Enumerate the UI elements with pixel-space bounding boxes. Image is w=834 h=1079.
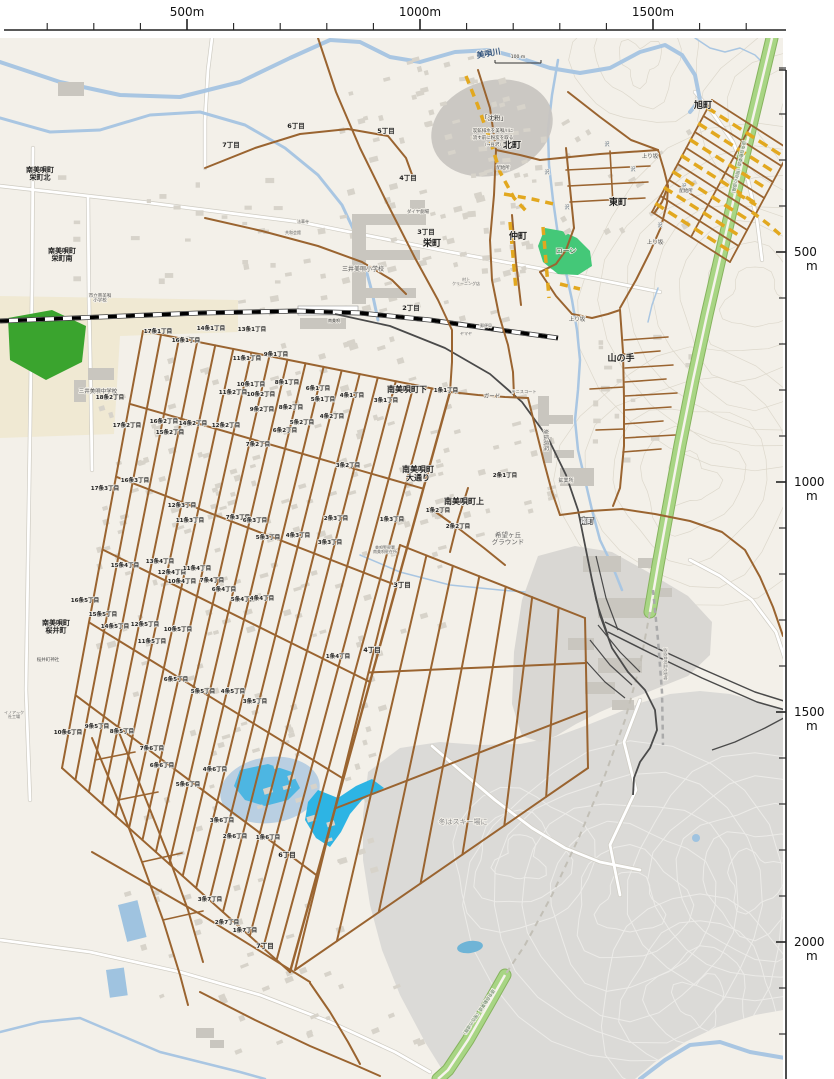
map-label: 旭町 bbox=[693, 99, 712, 111]
map-label: 14条1丁目 bbox=[197, 324, 225, 332]
map-label: 16条1丁目 bbox=[172, 336, 200, 344]
map-label: 上り坂 bbox=[647, 238, 664, 246]
map-label: 100 m bbox=[511, 54, 525, 60]
svg-text:m: m bbox=[806, 949, 818, 963]
map-label: 沢 bbox=[657, 222, 662, 229]
map-label: 南町 bbox=[581, 516, 595, 525]
map-label: 流す前に粉炭を取る bbox=[473, 134, 514, 141]
map-label: 7丁目 bbox=[256, 942, 274, 950]
svg-text:m: m bbox=[806, 489, 818, 503]
map-label: 1条2丁目 bbox=[426, 506, 451, 514]
map-label: 11条5丁目 bbox=[138, 637, 166, 645]
building bbox=[366, 288, 416, 298]
map-label: 14条5丁目 bbox=[101, 622, 129, 630]
map-label: 12条3丁目 bbox=[168, 501, 196, 509]
map-label: 炭鉱病院 bbox=[542, 429, 550, 452]
ruler-label: 500 bbox=[794, 245, 817, 259]
map-label: 1条7丁目 bbox=[233, 926, 258, 934]
map-label: 13条1丁目 bbox=[238, 325, 266, 333]
map-label: 11条3丁目 bbox=[176, 516, 204, 524]
map-label: 沢 bbox=[604, 141, 609, 148]
svg-text:m: m bbox=[806, 719, 818, 733]
map-label: 4丁目 bbox=[363, 646, 381, 654]
map-label: 4条2丁目 bbox=[320, 412, 345, 420]
map-label: 4条1丁目 bbox=[340, 391, 365, 399]
map-label: 1条4丁目 bbox=[326, 652, 351, 660]
map-svg[interactable]: 17条1丁目16条1丁目14条1丁目13条1丁目11条1丁目10条1丁目9条1丁… bbox=[0, 0, 834, 1079]
map-label: 共和会館 bbox=[285, 229, 301, 235]
map-label: 10条2丁目 bbox=[247, 390, 275, 398]
map-label: 6条3丁目 bbox=[243, 516, 268, 524]
map-label: 17条2丁目 bbox=[113, 421, 141, 429]
map-label: 5条2丁目 bbox=[290, 418, 315, 426]
map-label: 3丁目 bbox=[417, 228, 435, 236]
map-label: 南美唄町桜井町 bbox=[42, 618, 70, 634]
map-label: 炭鉱排水を美唄川に bbox=[473, 127, 514, 134]
map-label: 法華寺 bbox=[297, 218, 309, 224]
map-label: 2丁目 bbox=[402, 304, 420, 312]
map-label: 2条7丁目 bbox=[215, 918, 240, 926]
map-label: 10条5丁目 bbox=[164, 625, 192, 633]
map-label: 15条2丁目 bbox=[156, 428, 184, 436]
map-label: 南美唄町上 bbox=[444, 496, 484, 506]
map-label: 16条3丁目 bbox=[121, 476, 149, 484]
map-page: 17条1丁目16条1丁目14条1丁目13条1丁目11条1丁目10条1丁目9条1丁… bbox=[0, 0, 834, 1079]
building bbox=[585, 682, 615, 694]
map-label: 8条5丁目 bbox=[110, 727, 135, 735]
svg-text:m: m bbox=[806, 259, 818, 273]
map-label: 「沈粉」 bbox=[481, 113, 507, 122]
map-label: 配給所 bbox=[496, 164, 510, 171]
map-label: 10条4丁目 bbox=[168, 577, 196, 585]
map-label: ヤマヤ bbox=[460, 331, 472, 336]
map-label: 9条2丁目 bbox=[250, 405, 275, 413]
building bbox=[210, 1040, 224, 1048]
map-label: 7条2丁目 bbox=[246, 440, 271, 448]
map-label: 5条1丁目 bbox=[311, 395, 336, 403]
map-label: 16条2丁目 bbox=[150, 417, 178, 425]
building bbox=[538, 396, 549, 426]
map-label: 11条2丁目 bbox=[219, 388, 247, 396]
map-label: 12条5丁目 bbox=[131, 620, 159, 628]
building bbox=[549, 415, 573, 424]
map-label: 6条6丁目 bbox=[150, 761, 175, 769]
map-label: 11条1丁目 bbox=[233, 354, 261, 362]
map-label: ガード bbox=[484, 392, 501, 400]
map-label: 14条2丁目 bbox=[179, 419, 207, 427]
map-label: 17条1丁目 bbox=[144, 327, 172, 335]
map-label: 沢 bbox=[564, 204, 569, 211]
map-label: 3丁目 bbox=[393, 581, 411, 589]
map-label: 沢 bbox=[630, 166, 635, 173]
building bbox=[196, 1028, 214, 1038]
map-label: 2条6丁目 bbox=[223, 832, 248, 840]
map-label: 配給所 bbox=[679, 187, 693, 194]
map-label: 10条6丁目 bbox=[54, 728, 82, 736]
map-label: 沢 bbox=[544, 169, 549, 176]
map-label: 山の手 bbox=[607, 352, 634, 364]
building bbox=[598, 598, 646, 618]
map-label: 5条3丁目 bbox=[256, 533, 281, 541]
building bbox=[568, 638, 594, 650]
map-label: 4条6丁目 bbox=[203, 765, 228, 773]
map-label: 2条2丁目 bbox=[446, 522, 471, 530]
map-label: 9条1丁目 bbox=[264, 350, 289, 358]
map-label: 3条7丁目 bbox=[198, 895, 223, 903]
map-label: 4丁目 bbox=[399, 174, 417, 182]
map-label: 6条4丁目 bbox=[212, 585, 237, 593]
map-label: 仲町 bbox=[509, 230, 527, 242]
ruler-label: 1500 bbox=[794, 705, 825, 719]
map-label: 上り坂 bbox=[642, 152, 659, 160]
ruler-label: 1000 bbox=[794, 475, 825, 489]
map-label: 栄町 bbox=[422, 237, 441, 249]
map-label: 6丁目 bbox=[278, 851, 296, 859]
map-label: （→豆沢） bbox=[482, 141, 504, 148]
map-label: 鉱業所 bbox=[558, 477, 573, 484]
ruler-label: 500m bbox=[170, 5, 205, 19]
map-label: 1条6丁目 bbox=[256, 833, 281, 841]
map-label: 5丁目 bbox=[377, 127, 395, 135]
map-label: ローン bbox=[556, 247, 577, 255]
map-label: 7丁目 bbox=[222, 141, 240, 149]
ruler-label: 1000m bbox=[399, 5, 441, 19]
building bbox=[410, 200, 425, 209]
map-label: 2条1丁目 bbox=[493, 471, 518, 479]
map-label: 南美唄町下 bbox=[387, 384, 427, 394]
map-label: 10条1丁目 bbox=[237, 380, 265, 388]
map-label: 5条5丁目 bbox=[191, 687, 216, 695]
map-label: ダイヤ劇場 bbox=[407, 208, 430, 215]
building bbox=[88, 368, 114, 380]
map-label: 上り坂 bbox=[569, 315, 586, 323]
map-label: 南美唄町大通り bbox=[402, 464, 434, 482]
map-label: 冬はスキー場に bbox=[439, 817, 488, 826]
ruler-label: 1500m bbox=[632, 5, 674, 19]
map-label: 12条2丁目 bbox=[212, 421, 240, 429]
ruler-label: 2000 bbox=[794, 935, 825, 949]
map-label: 郵便局 bbox=[480, 322, 492, 328]
map-label: 13条4丁目 bbox=[146, 557, 174, 565]
map-label: 6条1丁目 bbox=[306, 384, 331, 392]
map-label: 1条1丁目 bbox=[434, 386, 459, 394]
map-label: 4条3丁目 bbox=[286, 531, 311, 539]
map-label: 東町 bbox=[609, 196, 627, 208]
map-label: 8条2丁目 bbox=[279, 403, 304, 411]
map-label: 4条4丁目 bbox=[250, 594, 275, 602]
map-label: 希望ヶ丘グラウンド bbox=[492, 530, 525, 546]
map-label: 3条2丁目 bbox=[336, 461, 361, 469]
map-label: 三井美唄中学校 bbox=[79, 387, 118, 395]
map-label: 道道美唄富良野線 bbox=[663, 648, 669, 680]
map-label: 6丁目 bbox=[287, 122, 305, 130]
map-label: 桜井町神社 bbox=[37, 656, 60, 663]
map-label: 南美唄 bbox=[328, 317, 340, 323]
map-label: 5条6丁目 bbox=[176, 780, 201, 788]
map-label: 3条3丁目 bbox=[318, 538, 343, 546]
historic-street bbox=[596, 429, 624, 430]
map-label: 1条3丁目 bbox=[380, 515, 405, 523]
map-label: 11条4丁目 bbox=[183, 564, 211, 572]
map-label: 3条5丁目 bbox=[243, 697, 268, 705]
map-label: 7条6丁目 bbox=[140, 744, 165, 752]
map-label: 9条5丁目 bbox=[85, 722, 110, 730]
map-label: 6条2丁目 bbox=[273, 426, 298, 434]
map-label: 南美唄町栄町北 bbox=[26, 165, 54, 181]
map-label: 7条4丁目 bbox=[200, 576, 225, 584]
map-label: 4条5丁目 bbox=[221, 687, 246, 695]
map-label: 南美唄町栄町南 bbox=[48, 246, 76, 262]
map-label: 6条5丁目 bbox=[164, 675, 189, 683]
map-label: 2条3丁目 bbox=[324, 514, 349, 522]
map-label: 3条1丁目 bbox=[374, 396, 399, 404]
map-label: 15条4丁目 bbox=[111, 561, 139, 569]
map-label: 17条3丁目 bbox=[91, 484, 119, 492]
map-label: 美唄警察署南美唄駐在所 bbox=[373, 544, 397, 554]
map-label: 16条5丁目 bbox=[71, 596, 99, 604]
map-label: 15条5丁目 bbox=[89, 610, 117, 618]
map-label: 三井美唄小学校 bbox=[342, 265, 384, 273]
map-label: 8条1丁目 bbox=[275, 378, 300, 386]
map-label: 3条6丁目 bbox=[210, 816, 235, 824]
building bbox=[58, 82, 84, 96]
